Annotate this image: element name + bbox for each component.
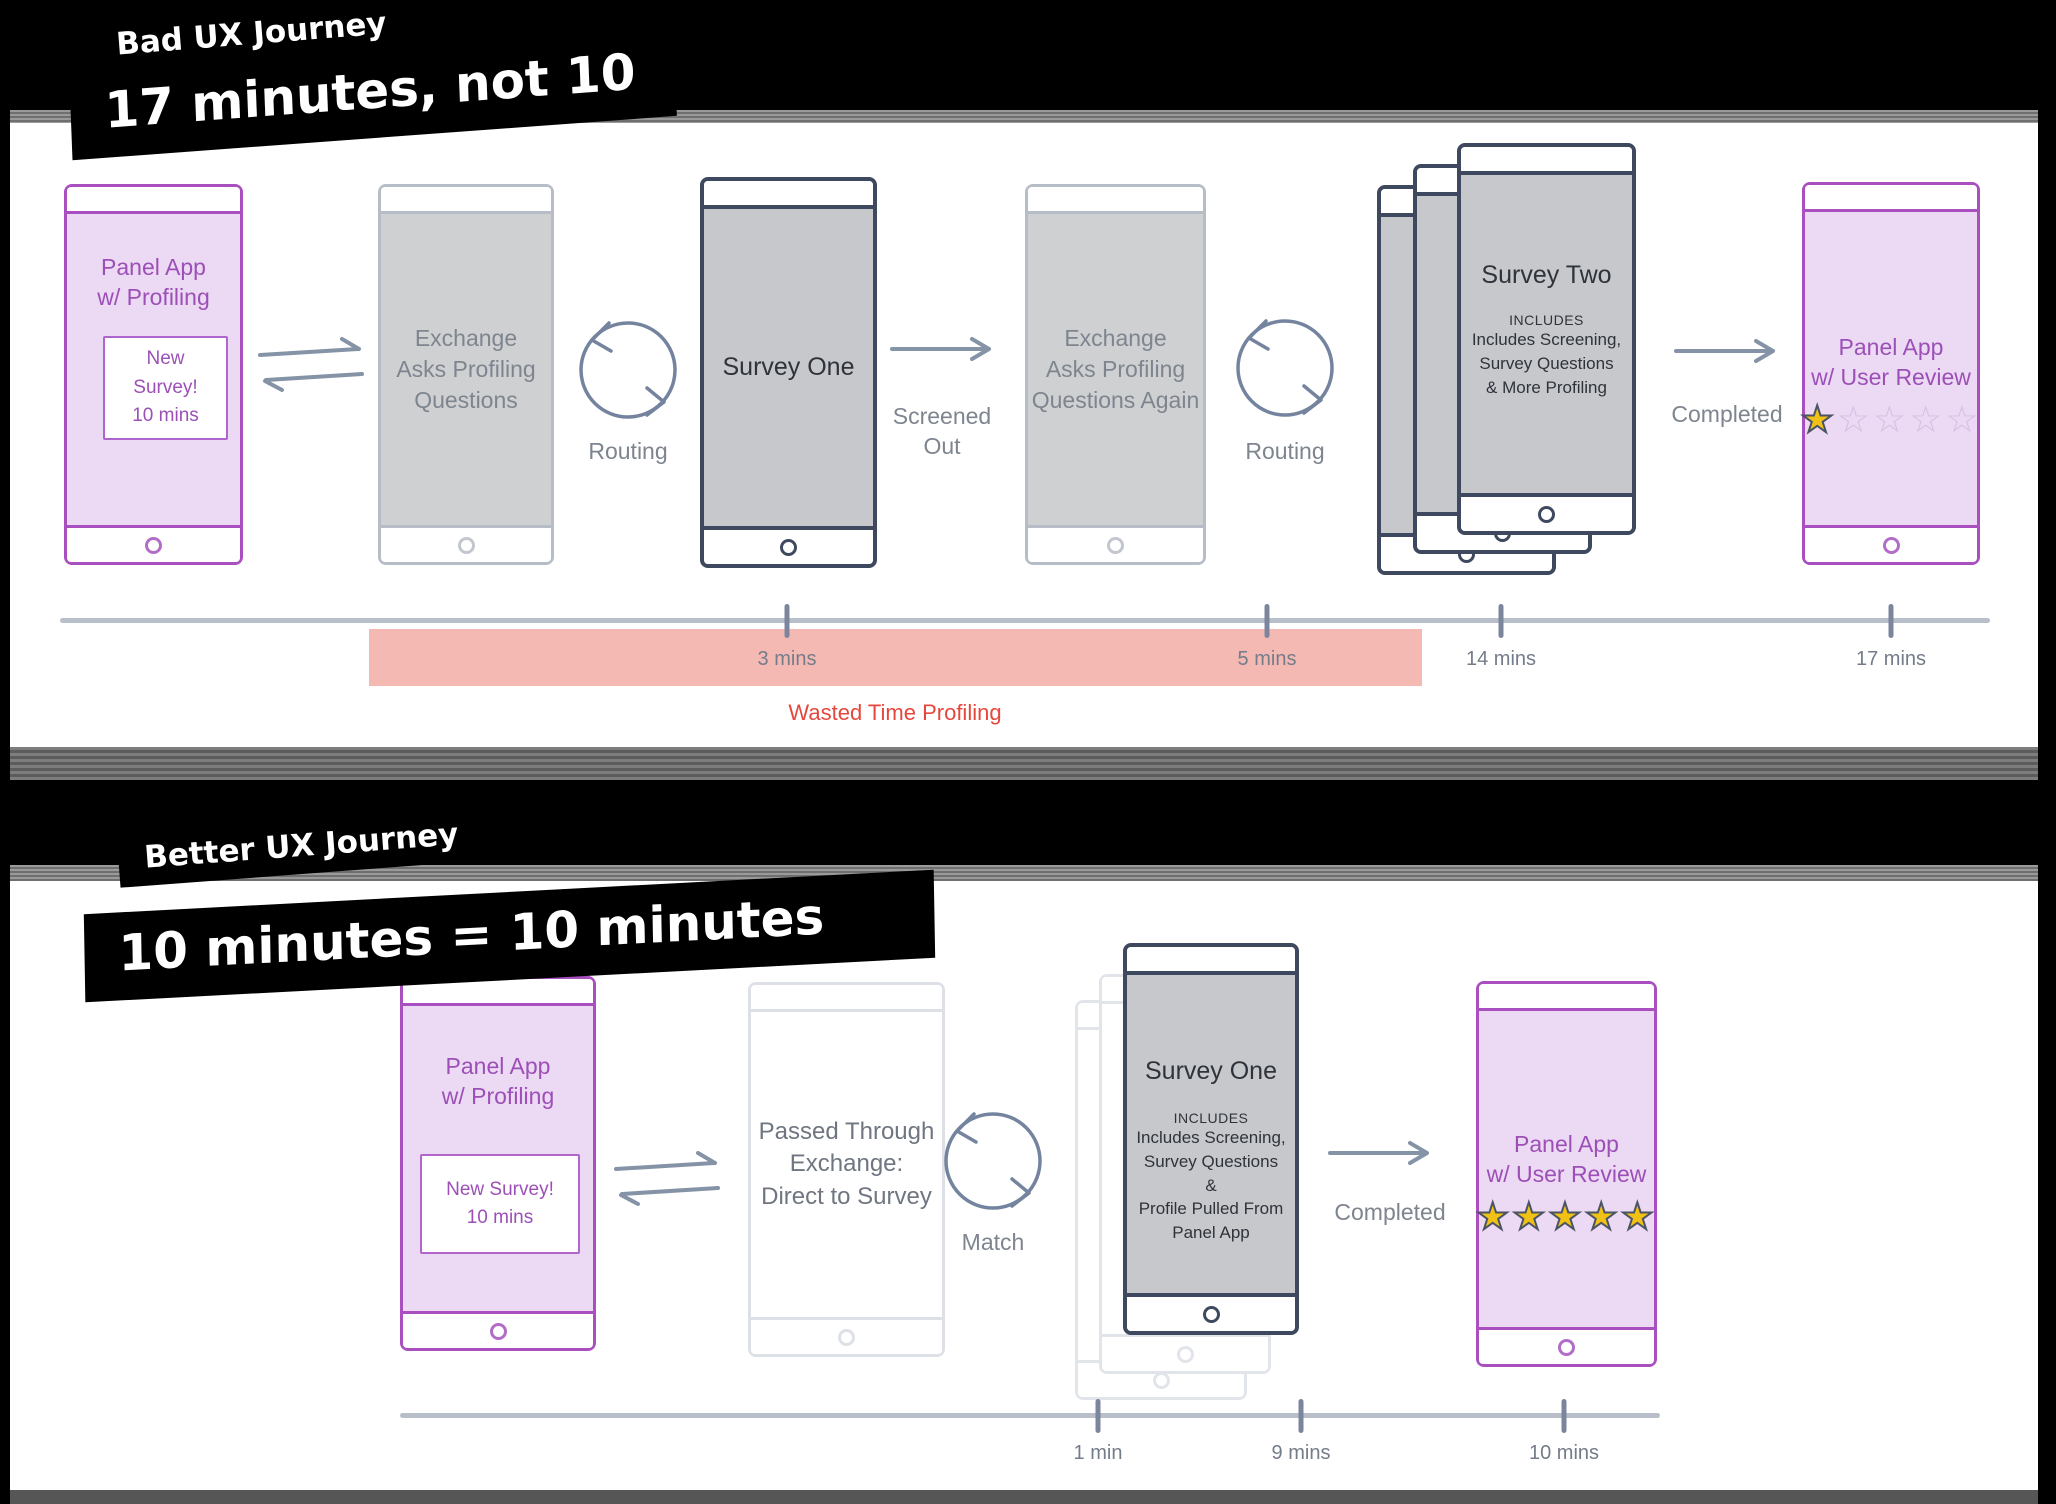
includes-body: Includes Screening, Survey Questions & P… bbox=[1136, 1126, 1285, 1245]
phone-dock bbox=[381, 525, 551, 562]
star-filled-icon: ★ bbox=[1476, 1198, 1512, 1235]
includes-body: Includes Screening, Survey Questions & M… bbox=[1472, 328, 1621, 399]
star-filled-icon: ★ bbox=[1801, 401, 1837, 438]
phone-body-text: Exchange Asks Profiling Questions bbox=[396, 323, 535, 416]
phone-status-bar bbox=[1805, 185, 1977, 212]
phone-screen: Survey One bbox=[704, 209, 873, 526]
star-filled-icon: ★ bbox=[1621, 1198, 1657, 1235]
home-button-icon bbox=[1538, 506, 1555, 523]
phone-title: Panel App w/ Profiling bbox=[442, 1051, 554, 1112]
star-empty-icon: ☆ bbox=[1873, 401, 1909, 438]
exchange-arrows-icon bbox=[608, 1150, 726, 1208]
timeline-tick bbox=[1096, 1399, 1101, 1433]
timeline-tick bbox=[1299, 1399, 1304, 1433]
phone-body-text: Passed Through Exchange: Direct to Surve… bbox=[759, 1116, 935, 1213]
routing-loop-icon bbox=[573, 315, 683, 425]
slide1-bottom-edge bbox=[10, 747, 2038, 780]
better-passthrough-phone: Passed Through Exchange: Direct to Surve… bbox=[748, 982, 945, 1357]
phone-status-bar bbox=[1479, 984, 1654, 1011]
home-button-icon bbox=[780, 539, 797, 556]
phone-status-bar bbox=[704, 181, 873, 209]
includes-heading: INCLUDES bbox=[1509, 312, 1584, 328]
slide2-bottom-edge bbox=[10, 1490, 2038, 1504]
bad-exchange-phone-2: Exchange Asks Profiling Questions Again bbox=[1025, 184, 1206, 565]
wasted-time-label: Wasted Time Profiling bbox=[788, 700, 1001, 726]
match-loop-icon bbox=[938, 1106, 1048, 1216]
star-empty-icon: ☆ bbox=[1837, 401, 1873, 438]
includes-heading: INCLUDES bbox=[1174, 1110, 1249, 1126]
phone-screen: Panel App w/ Profiling New Survey! 10 mi… bbox=[403, 1006, 593, 1311]
phone-screen: Survey One INCLUDES Includes Screening, … bbox=[1127, 975, 1295, 1293]
phone-dock bbox=[1479, 1327, 1654, 1364]
completed-arrow-icon bbox=[1672, 338, 1780, 364]
screened-out-label: Screened Out bbox=[893, 402, 991, 462]
phone-title: Panel App w/ User Review bbox=[1487, 1129, 1647, 1190]
infographic-canvas: Bad UX Journey 17 minutes, not 10 Better… bbox=[0, 0, 2056, 1504]
phone-title: Survey One bbox=[722, 353, 854, 382]
home-button-icon bbox=[1203, 1306, 1220, 1323]
home-button-icon bbox=[458, 537, 475, 554]
timeline-tick-label: 14 mins bbox=[1466, 648, 1536, 671]
phone-dock bbox=[67, 525, 240, 562]
phone-screen: Panel App w/ User Review ★☆☆☆☆ bbox=[1805, 212, 1977, 525]
home-button-icon bbox=[1107, 537, 1124, 554]
phone-dock bbox=[1805, 525, 1977, 562]
star-rating: ★★★★★ bbox=[1476, 1198, 1657, 1235]
new-survey-card: New Survey! 10 mins bbox=[420, 1154, 580, 1254]
new-survey-card: New Survey! 10 mins bbox=[103, 336, 228, 440]
completed-arrow-icon bbox=[1326, 1140, 1434, 1166]
exchange-arrows-icon bbox=[252, 336, 370, 394]
timeline-tick bbox=[1265, 604, 1270, 638]
star-empty-icon: ☆ bbox=[1909, 401, 1945, 438]
timeline-tick-label: 17 mins bbox=[1856, 648, 1926, 671]
phone-dock bbox=[1461, 493, 1632, 531]
home-button-icon bbox=[145, 537, 162, 554]
bad-panel-app-phone: Panel App w/ Profiling New Survey! 10 mi… bbox=[64, 184, 243, 565]
phone-dock bbox=[403, 1311, 593, 1348]
home-button-icon bbox=[1883, 537, 1900, 554]
phone-status-bar bbox=[1127, 947, 1295, 975]
completed-label-2: Completed bbox=[1334, 1198, 1445, 1228]
bad-survey-two-phone: Survey Two INCLUDES Includes Screening, … bbox=[1457, 143, 1636, 535]
timeline-tick bbox=[1499, 604, 1504, 638]
timeline-tick-label: 9 mins bbox=[1272, 1442, 1331, 1465]
phone-title: Survey Two bbox=[1481, 261, 1611, 290]
phone-screen: Exchange Asks Profiling Questions Again bbox=[1028, 214, 1203, 525]
timeline-tick bbox=[1562, 1399, 1567, 1433]
phone-title: Survey One bbox=[1145, 1057, 1277, 1086]
phone-status-bar bbox=[751, 985, 942, 1012]
timeline-tick-label: 1 min bbox=[1074, 1442, 1123, 1465]
phone-screen: Passed Through Exchange: Direct to Surve… bbox=[751, 1012, 942, 1317]
timeline-tick-label: 3 mins bbox=[758, 648, 817, 671]
timeline-tick-label: 5 mins bbox=[1238, 648, 1297, 671]
home-button-icon bbox=[1177, 1346, 1194, 1363]
match-label: Match bbox=[962, 1228, 1025, 1258]
better-survey-one-phone: Survey One INCLUDES Includes Screening, … bbox=[1123, 943, 1299, 1335]
timeline-tick bbox=[1889, 604, 1894, 638]
phone-dock bbox=[1028, 525, 1203, 562]
timeline-tick-label: 10 mins bbox=[1529, 1442, 1599, 1465]
bad-survey-one-phone: Survey One bbox=[700, 177, 877, 568]
bad-review-phone: Panel App w/ User Review ★☆☆☆☆ bbox=[1802, 182, 1980, 565]
phone-status-bar bbox=[67, 187, 240, 214]
phone-title: Panel App w/ Profiling bbox=[97, 252, 209, 313]
star-filled-icon: ★ bbox=[1585, 1198, 1621, 1235]
home-button-icon bbox=[490, 1323, 507, 1340]
home-button-icon bbox=[838, 1329, 855, 1346]
phone-status-bar bbox=[381, 187, 551, 214]
phone-screen: Survey Two INCLUDES Includes Screening, … bbox=[1461, 175, 1632, 493]
better-review-phone: Panel App w/ User Review ★★★★★ bbox=[1476, 981, 1657, 1367]
phone-title: Panel App w/ User Review bbox=[1811, 332, 1971, 393]
bad-timeline-axis bbox=[60, 618, 1990, 623]
routing-label-2: Routing bbox=[1245, 437, 1324, 467]
bad-exchange-phone-1: Exchange Asks Profiling Questions bbox=[378, 184, 554, 565]
phone-dock bbox=[704, 526, 873, 564]
home-button-icon bbox=[1558, 1339, 1575, 1356]
star-filled-icon: ★ bbox=[1512, 1198, 1548, 1235]
routing-loop-icon bbox=[1230, 313, 1340, 423]
routing-label-1: Routing bbox=[588, 437, 667, 467]
phone-screen: Panel App w/ Profiling New Survey! 10 mi… bbox=[67, 214, 240, 525]
star-filled-icon: ★ bbox=[1548, 1198, 1584, 1235]
phone-body-text: Exchange Asks Profiling Questions Again bbox=[1032, 323, 1200, 416]
phone-status-bar bbox=[1461, 147, 1632, 175]
better-timeline-axis bbox=[400, 1413, 1660, 1418]
completed-label-1: Completed bbox=[1671, 400, 1782, 430]
star-rating: ★☆☆☆☆ bbox=[1801, 401, 1982, 438]
home-button-icon bbox=[1153, 1372, 1170, 1389]
phone-status-bar bbox=[1028, 187, 1203, 214]
star-empty-icon: ☆ bbox=[1945, 401, 1981, 438]
phone-screen: Exchange Asks Profiling Questions bbox=[381, 214, 551, 525]
better-panel-app-phone: Panel App w/ Profiling New Survey! 10 mi… bbox=[400, 976, 596, 1351]
timeline-tick bbox=[785, 604, 790, 638]
phone-dock bbox=[1127, 1293, 1295, 1331]
phone-dock bbox=[751, 1317, 942, 1354]
phone-screen: Panel App w/ User Review ★★★★★ bbox=[1479, 1011, 1654, 1327]
screened-out-arrow-icon bbox=[888, 336, 996, 362]
